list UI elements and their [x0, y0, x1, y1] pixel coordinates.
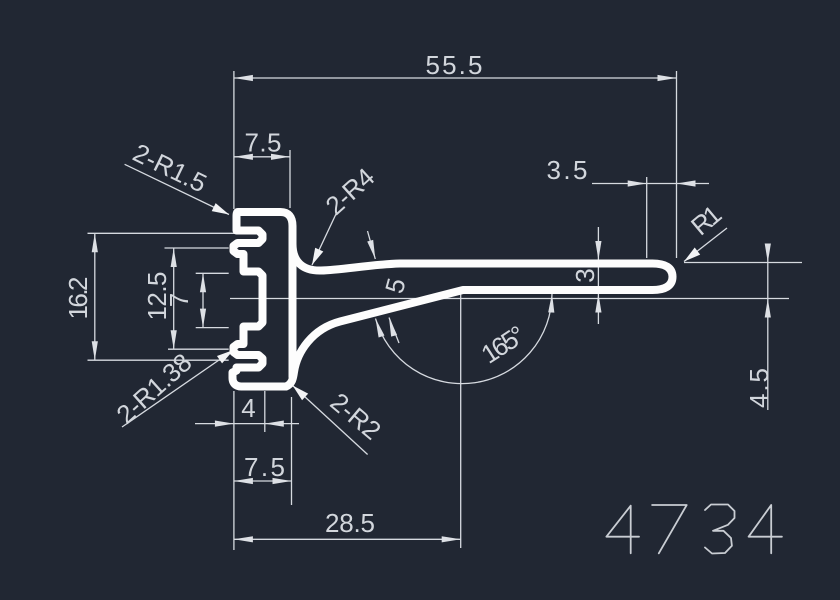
svg-text:3: 3	[570, 268, 600, 282]
svg-text:7.5: 7.5	[245, 128, 282, 158]
svg-text:7: 7	[164, 293, 194, 307]
svg-text:16.2: 16.2	[63, 277, 93, 320]
svg-text:28.5: 28.5	[325, 508, 375, 538]
svg-text:7.5: 7.5	[244, 452, 285, 482]
svg-text:4.5: 4.5	[744, 368, 774, 408]
svg-text:3.5: 3.5	[547, 155, 588, 185]
svg-text:4: 4	[241, 393, 255, 423]
svg-text:55.5: 55.5	[426, 50, 483, 80]
